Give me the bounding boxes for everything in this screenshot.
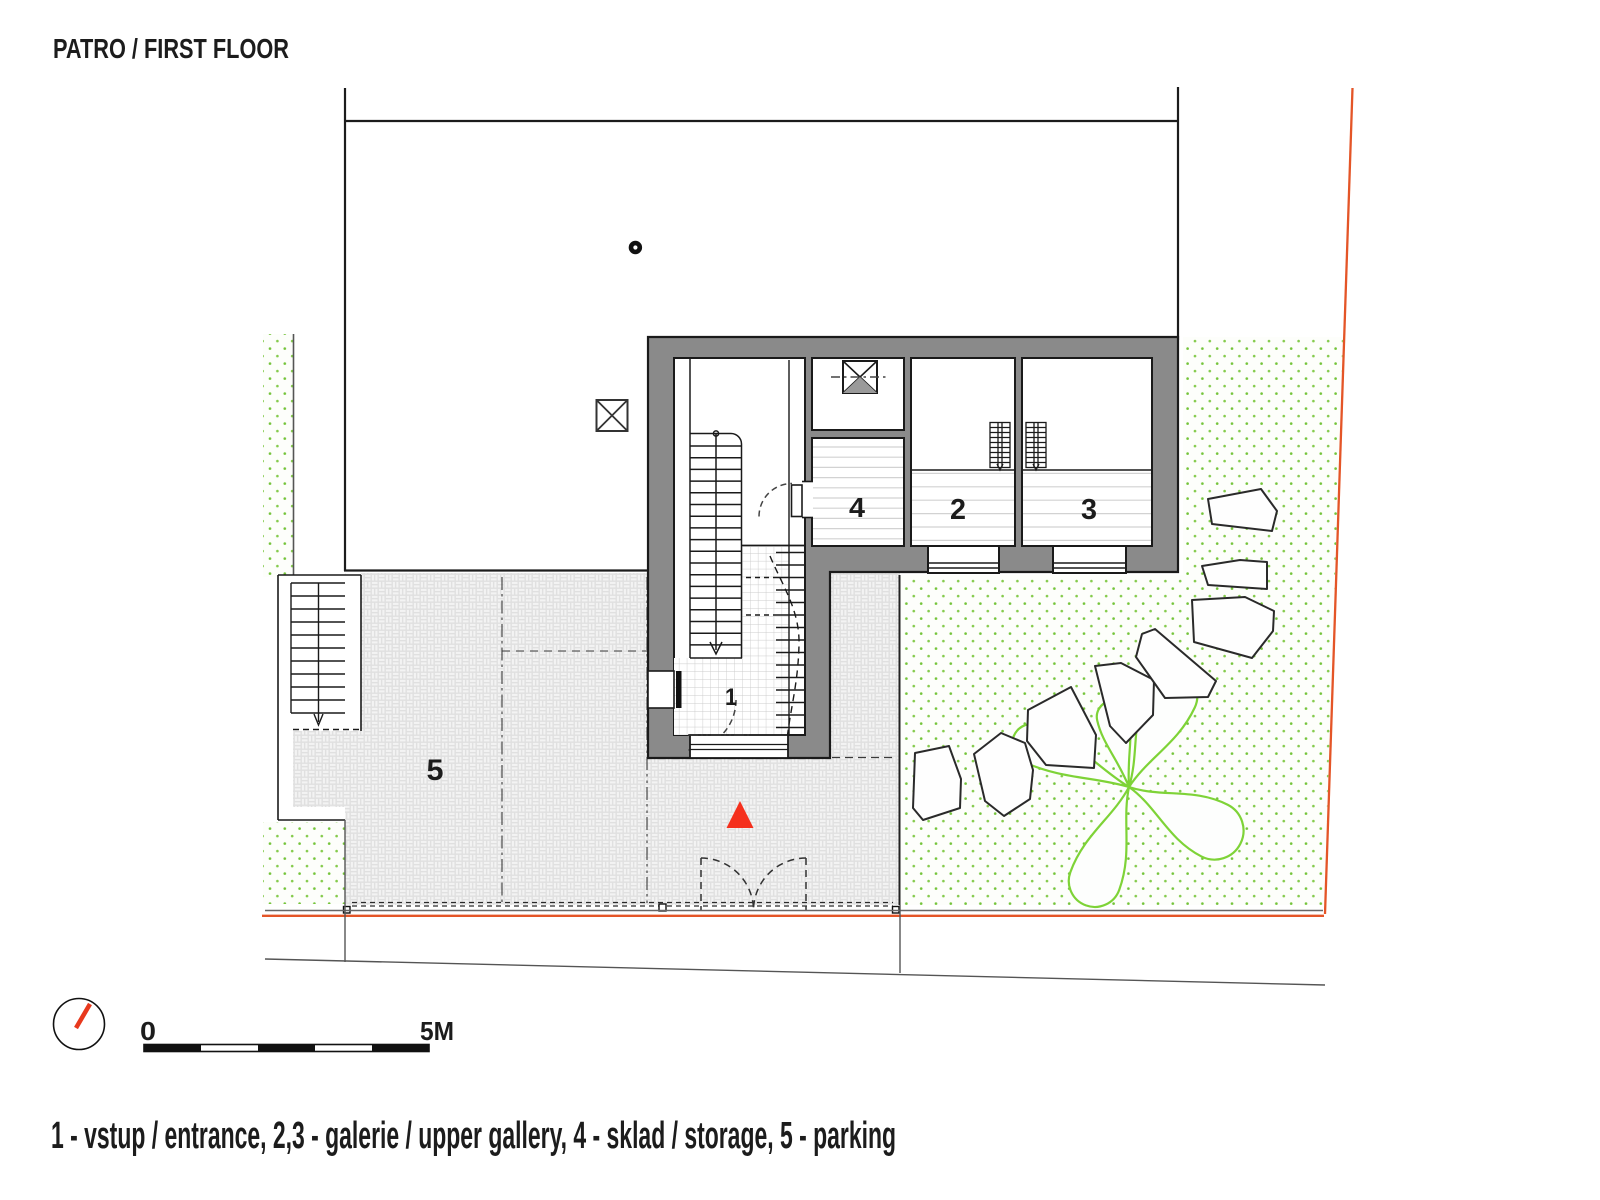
svg-text:4: 4 bbox=[849, 492, 865, 523]
svg-text:2: 2 bbox=[950, 494, 966, 526]
svg-text:PATRO / FIRST FLOOR: PATRO / FIRST FLOOR bbox=[53, 33, 289, 64]
svg-text:3: 3 bbox=[1081, 494, 1097, 526]
svg-text:1 - vstup / entrance, 2,3 - ga: 1 - vstup / entrance, 2,3 - galerie / up… bbox=[51, 1115, 896, 1157]
svg-text:5M: 5M bbox=[420, 1016, 454, 1046]
svg-text:0: 0 bbox=[140, 1016, 156, 1046]
svg-text:1: 1 bbox=[725, 684, 737, 711]
svg-text:5: 5 bbox=[427, 754, 444, 787]
